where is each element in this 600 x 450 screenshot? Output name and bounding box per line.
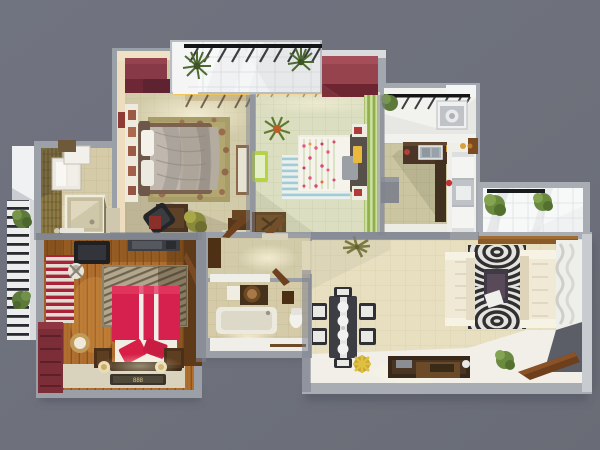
svg-text:888: 888: [133, 378, 144, 384]
